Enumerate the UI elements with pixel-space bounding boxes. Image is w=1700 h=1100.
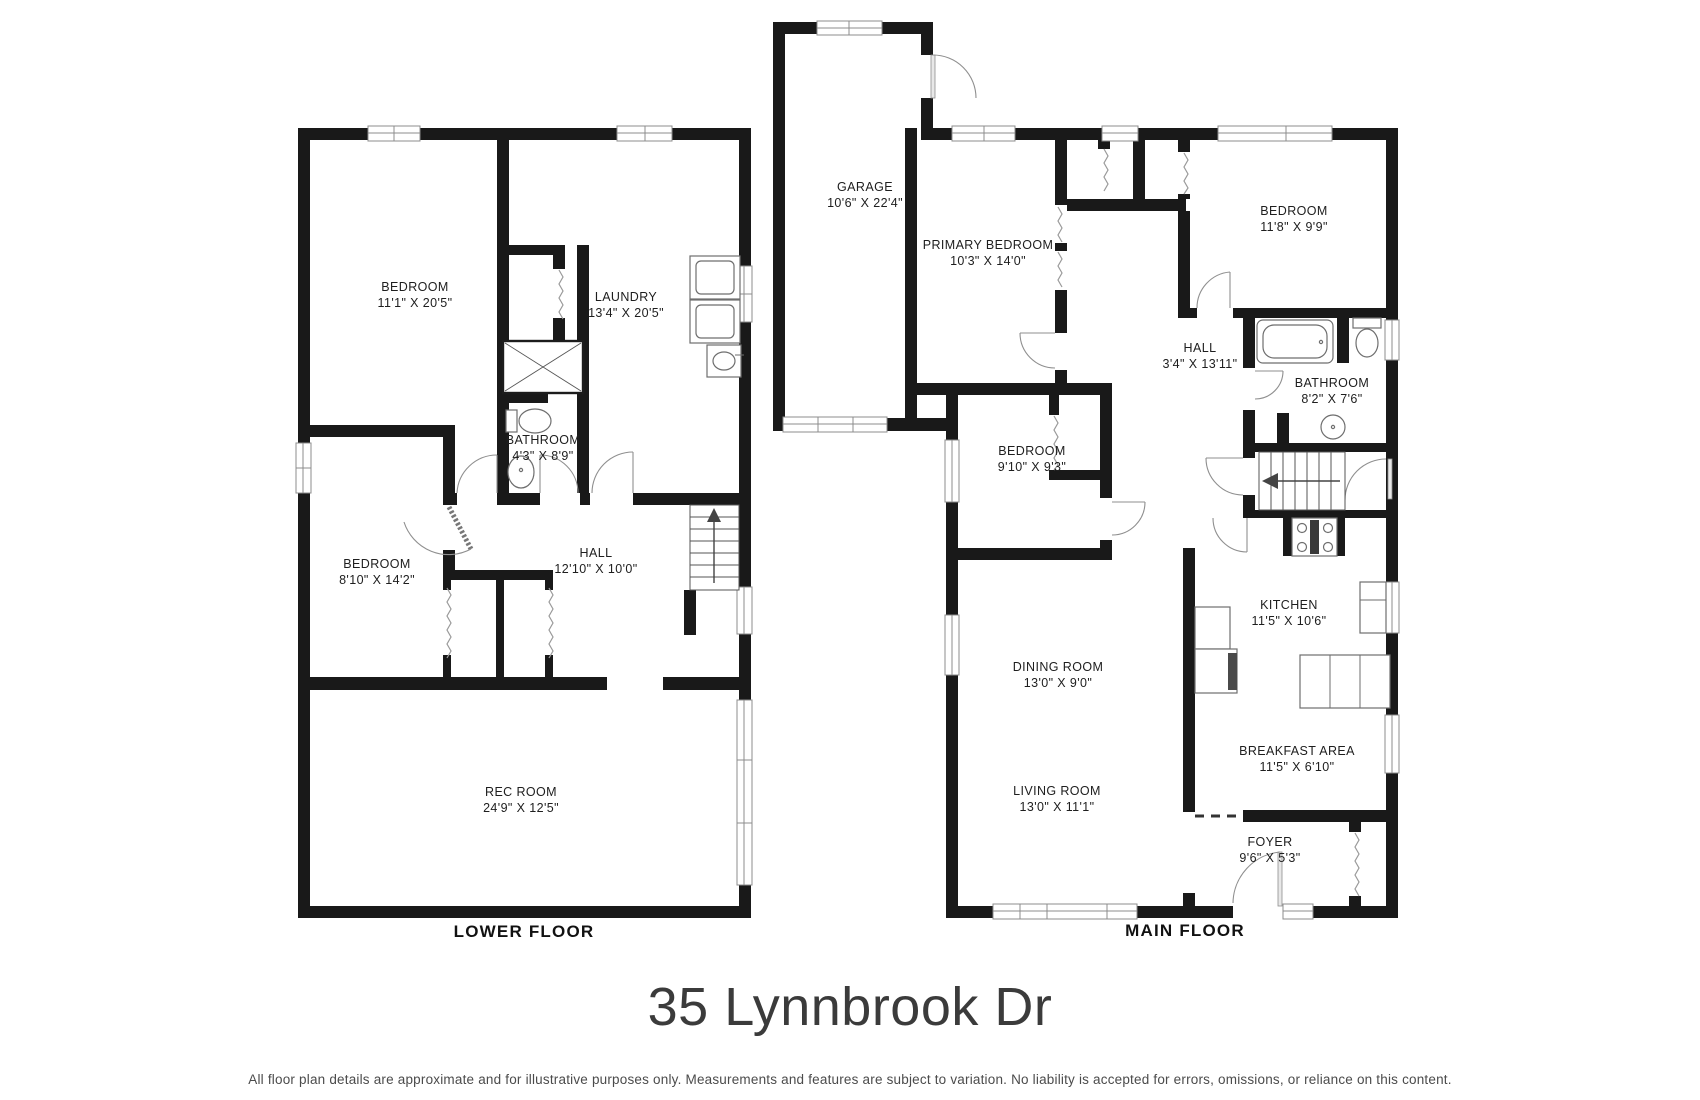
room-label-breakfast-area: BREAKFAST AREA11'5" X 6'10" <box>1239 743 1355 775</box>
stove-icon <box>1292 518 1337 556</box>
accordion-door-icon <box>1355 833 1359 896</box>
accordion-door-icon <box>559 270 563 319</box>
accordion-door-icon <box>1184 153 1188 194</box>
disclaimer-text: All floor plan details are approximate a… <box>0 1072 1700 1087</box>
room-label-kitchen: KITCHEN11'5" X 10'6" <box>1252 597 1327 629</box>
dryer-icon <box>690 300 740 343</box>
table-icon <box>1300 655 1390 708</box>
washer-icon <box>690 256 740 299</box>
accordion-door-icon <box>1104 149 1108 191</box>
accordion-door-icon <box>1058 252 1062 287</box>
main-floor-stairs <box>1259 452 1345 510</box>
room-label-lower-bathroom: BATHROOM4'3" X 8'9" <box>506 432 581 464</box>
bathtub-icon <box>1257 320 1333 363</box>
kitchen-counter-icon <box>1195 607 1237 693</box>
room-label-living-room: LIVING ROOM13'0" X 11'1" <box>1013 783 1101 815</box>
lower-floor-stairs <box>690 505 739 590</box>
toilet-icon <box>506 409 551 433</box>
room-label-garage: GARAGE10'6" X 22'4" <box>827 179 903 211</box>
room-label-main-bedroom-2: BEDROOM9'10" X 9'3" <box>998 443 1067 475</box>
main-floor-label: MAIN FLOOR <box>1125 921 1245 941</box>
laundry-sink-icon <box>707 345 744 377</box>
floor-plan-drawing <box>0 0 1700 1100</box>
room-label-main-bedroom-1: BEDROOM11'8" X 9'9" <box>1260 203 1328 235</box>
room-label-main-hall: HALL3'4" X 13'11" <box>1163 340 1238 372</box>
room-label-lower-bedroom-1: BEDROOM11'1" X 20'5" <box>378 279 453 311</box>
room-label-primary-bedroom: PRIMARY BEDROOM10'3" X 14'0" <box>923 237 1054 269</box>
room-label-lower-bedroom-2: BEDROOM8'10" X 14'2" <box>339 556 415 588</box>
room-label-lower-rec-room: REC ROOM24'9" X 12'5" <box>483 784 559 816</box>
shower-icon <box>503 341 583 393</box>
room-label-foyer: FOYER9'6" X 5'3" <box>1239 834 1300 866</box>
page-title: 35 Lynnbrook Dr <box>0 976 1700 1038</box>
room-label-lower-hall: HALL12'10" X 10'0" <box>554 545 637 577</box>
room-label-dining-room: DINING ROOM13'0" X 9'0" <box>1013 659 1104 691</box>
accordion-door-icon <box>549 588 553 658</box>
sink-icon <box>1321 415 1345 439</box>
accordion-door-icon <box>447 588 451 658</box>
room-label-main-bathroom: BATHROOM8'2" X 7'6" <box>1295 375 1370 407</box>
room-label-lower-laundry: LAUNDRY13'4" X 20'5" <box>588 289 664 321</box>
accordion-door-icon <box>1058 207 1062 242</box>
refrigerator-icon <box>1360 582 1386 633</box>
lower-floor-windows <box>296 126 752 885</box>
lower-floor-label: LOWER FLOOR <box>454 922 595 942</box>
toilet-icon <box>1353 318 1381 357</box>
floor-plan-page: BEDROOM11'1" X 20'5" LAUNDRY13'4" X 20'5… <box>0 0 1700 1100</box>
